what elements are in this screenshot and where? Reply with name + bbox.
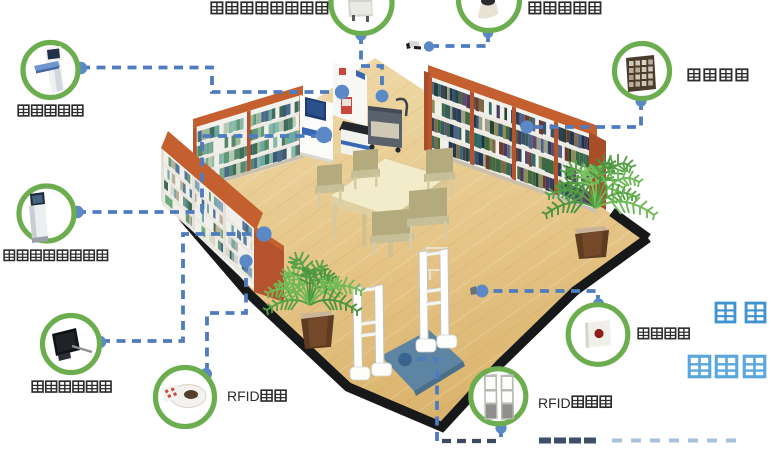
svg-text:RFID: RFID	[538, 395, 571, 411]
svg-text:RFID: RFID	[227, 388, 260, 404]
